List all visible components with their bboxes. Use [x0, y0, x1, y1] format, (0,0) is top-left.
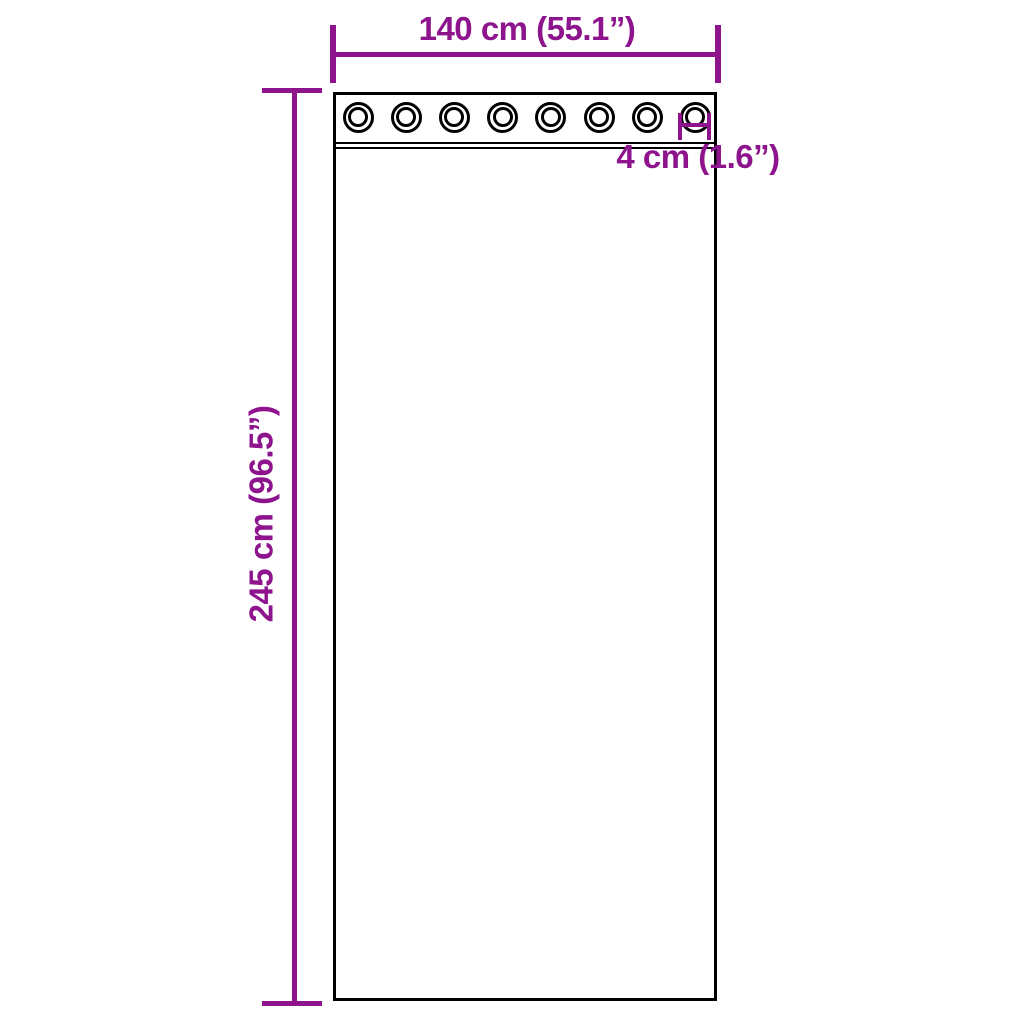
- grommet-icon: [439, 102, 470, 133]
- grommet-icon: [391, 102, 422, 133]
- height-dimension-line: [292, 91, 297, 1003]
- grommet-icon: [632, 102, 663, 133]
- grommet-icon: [584, 102, 615, 133]
- grommet-icon: [343, 102, 374, 133]
- curtain-panel: [333, 92, 717, 1001]
- grommet-icon: [487, 102, 518, 133]
- grommet-dimension-bar: [678, 123, 711, 127]
- grommet-inner-ring: [637, 107, 657, 127]
- grommet-inner-ring: [348, 107, 368, 127]
- grommet-inner-ring: [493, 107, 513, 127]
- grommet-icon: [535, 102, 566, 133]
- grommet-inner-ring: [589, 107, 609, 127]
- width-dimension-line: [333, 52, 721, 57]
- height-dimension-label: 245 cm (96.5”): [245, 406, 278, 623]
- height-dimension-tick-top: [262, 88, 322, 93]
- grommet-inner-ring: [444, 107, 464, 127]
- height-dimension-tick-bottom: [262, 1001, 322, 1006]
- width-dimension-label: 140 cm (55.1”): [333, 12, 721, 45]
- grommet-diameter-label: 4 cm (1.6”): [616, 140, 779, 173]
- grommet-inner-ring: [541, 107, 561, 127]
- dimension-diagram: 140 cm (55.1”) 245 cm (96.5”) 4 cm (1.6”…: [0, 0, 1024, 1024]
- grommet-inner-ring: [396, 107, 416, 127]
